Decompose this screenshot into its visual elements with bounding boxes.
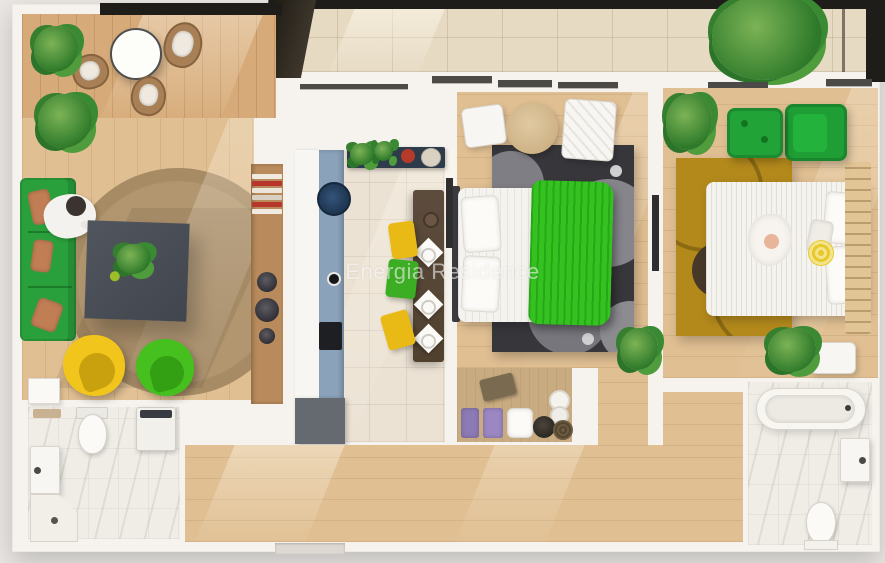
sunlight-patch bbox=[455, 445, 584, 542]
window-sill bbox=[432, 76, 492, 83]
sink-vanity-2 bbox=[840, 438, 870, 482]
green-armchair bbox=[785, 104, 847, 161]
bathtub-basin bbox=[765, 395, 855, 423]
faucet bbox=[859, 457, 866, 464]
tomatoes bbox=[401, 149, 415, 163]
washing-machine bbox=[136, 407, 176, 451]
purple-towel bbox=[461, 408, 479, 438]
plate-of-greens bbox=[421, 148, 441, 167]
green-egg-chair bbox=[136, 339, 194, 396]
dark-bowl bbox=[533, 416, 555, 438]
hallway-floor bbox=[185, 445, 743, 542]
bed2-headboard-slats bbox=[845, 162, 871, 334]
toilet-2 bbox=[806, 502, 836, 544]
white-pillow bbox=[507, 408, 533, 438]
toilet bbox=[78, 414, 107, 454]
bed1-pillow bbox=[460, 195, 502, 254]
plate bbox=[414, 324, 444, 354]
baby-head bbox=[764, 234, 779, 249]
purple-towel bbox=[483, 408, 503, 438]
bedroom1-wall-tv bbox=[446, 178, 453, 248]
washer-panel bbox=[140, 410, 172, 418]
book bbox=[252, 181, 282, 186]
bath-shelf bbox=[33, 409, 61, 418]
cooktop bbox=[319, 322, 342, 350]
yellow-egg-chair bbox=[63, 335, 125, 396]
rug-dot bbox=[610, 165, 622, 177]
balcony-railing bbox=[100, 3, 282, 15]
bed2-mattress bbox=[706, 182, 866, 316]
bathtub bbox=[756, 388, 866, 430]
armchair-seat bbox=[793, 114, 827, 152]
grey-base-cabinet bbox=[295, 398, 345, 444]
herb-pot bbox=[350, 143, 374, 165]
herb-shelf bbox=[347, 147, 445, 168]
bistro-table bbox=[110, 28, 162, 80]
egg-chair-seat bbox=[146, 352, 188, 394]
book bbox=[252, 195, 282, 200]
sunlight-patch bbox=[195, 445, 344, 542]
faucet bbox=[34, 467, 41, 474]
book bbox=[252, 209, 282, 214]
white-pouf bbox=[460, 103, 507, 148]
tuft bbox=[761, 136, 768, 143]
entry-threshold bbox=[275, 543, 345, 554]
window-sill bbox=[558, 82, 618, 88]
book bbox=[252, 174, 282, 179]
toilet-tank-2 bbox=[804, 540, 838, 550]
sunlight-patch bbox=[329, 8, 445, 72]
rug-dot bbox=[582, 333, 594, 345]
window-sill bbox=[498, 80, 552, 87]
window-sill bbox=[826, 79, 872, 86]
green-ottoman bbox=[727, 108, 783, 158]
woven-basket bbox=[553, 420, 573, 440]
person-head bbox=[66, 196, 86, 216]
sofa-seam bbox=[28, 286, 72, 288]
decor-bowl bbox=[255, 298, 279, 322]
terrace-railing-corner bbox=[866, 0, 885, 82]
window-sill bbox=[300, 84, 408, 89]
white-pouf-quilted bbox=[561, 98, 617, 161]
tuft bbox=[741, 120, 748, 127]
book bbox=[252, 188, 282, 193]
storage-basket bbox=[479, 372, 517, 402]
decor-bowl bbox=[259, 328, 275, 344]
white-side-table bbox=[810, 342, 856, 374]
plate bbox=[414, 290, 444, 320]
watermark-text: Energia Residence bbox=[0, 259, 885, 285]
tub-faucet bbox=[845, 405, 851, 411]
herb-pot bbox=[375, 141, 393, 161]
book bbox=[252, 202, 282, 207]
egg-chair-seat bbox=[74, 348, 120, 394]
closet-floor bbox=[457, 368, 572, 442]
book-stack bbox=[251, 164, 283, 214]
shower-drain bbox=[51, 517, 58, 524]
bed1-green-blanket bbox=[528, 180, 614, 326]
round-side-table bbox=[506, 102, 558, 154]
hallway-stub-bedroom2 bbox=[663, 392, 743, 446]
hallway-stub-bedroom1 bbox=[598, 368, 648, 446]
floorplan-render: Energia Residence bbox=[0, 0, 885, 563]
sink-vanity bbox=[30, 446, 60, 494]
terrace-divider bbox=[842, 8, 845, 72]
bathroom1-door-leaf bbox=[28, 378, 60, 404]
tealight bbox=[423, 212, 439, 228]
dining-chair-yellow bbox=[388, 220, 419, 259]
sofa-pillow bbox=[30, 296, 65, 333]
kitchen-sink bbox=[317, 182, 351, 216]
